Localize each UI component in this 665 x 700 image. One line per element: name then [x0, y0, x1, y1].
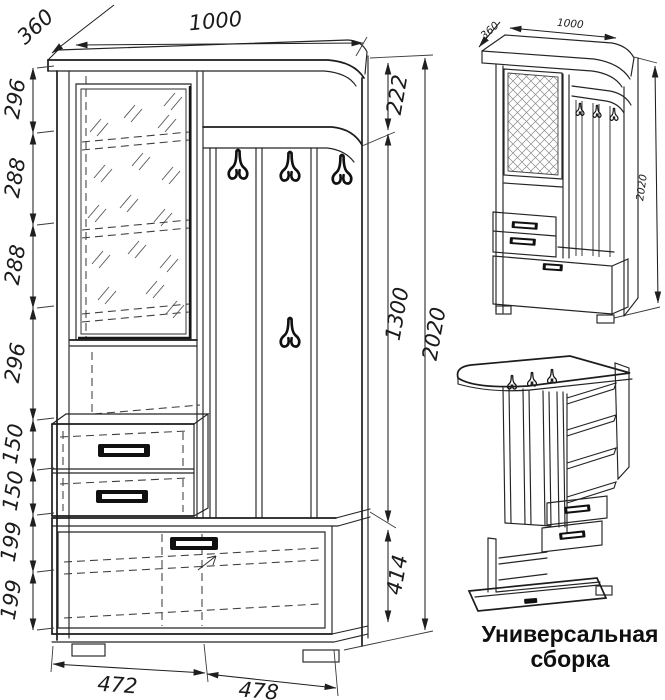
caption-line-2: сборка — [530, 646, 609, 672]
drawer-handle — [559, 530, 586, 540]
drawer-handle — [96, 490, 148, 503]
furniture-technical-drawing: 1000 360 — [0, 0, 665, 700]
drawer-handle — [98, 444, 150, 457]
foot — [597, 315, 614, 323]
coat-hook-icon — [576, 103, 584, 115]
dim-label-360: 360 — [12, 4, 58, 49]
caption-line-1: Универсальная — [482, 621, 659, 647]
dim-bottom: 472 478 — [51, 644, 338, 700]
coat-hook-icon — [281, 318, 300, 347]
dim-label-472: 472 — [97, 672, 139, 699]
dim-chain-left: 296 288 288 296 150 150 199 199 — [0, 66, 54, 630]
dim-label-199: 199 — [0, 520, 26, 564]
front-view: 1000 360 — [0, 4, 451, 700]
coat-hook-icon — [610, 108, 618, 120]
mirror-bottom-shelf — [70, 340, 200, 416]
coat-hook-icon — [548, 369, 557, 383]
dim-label-222: 222 — [382, 73, 413, 117]
door-handle — [170, 537, 218, 550]
dim-label-296: 296 — [0, 341, 30, 385]
coat-hook-icon — [528, 372, 537, 386]
dim-label-478: 478 — [238, 677, 280, 700]
flap-handle — [524, 598, 537, 604]
iso-view-front: 360 1000 2020 — [479, 17, 660, 323]
hook-panel-slats — [210, 148, 317, 518]
iso1-body — [493, 58, 638, 323]
top-canopy — [48, 40, 367, 86]
iso2-slat-panel — [503, 388, 565, 527]
iso-dim-label-1000: 1000 — [556, 17, 584, 31]
coat-hook-icon — [333, 155, 352, 184]
dim-label-2020: 2020 — [418, 305, 451, 362]
dim-width-top: 1000 — [76, 7, 367, 56]
iso-dim-label-2020: 2020 — [634, 173, 650, 201]
dim-label-150: 150 — [0, 422, 28, 466]
bottom-cabinet — [52, 509, 370, 662]
drawing-canvas: 1000 360 — [0, 0, 665, 700]
center-divider — [197, 72, 203, 518]
dim-label-150: 150 — [0, 469, 28, 513]
dim-label-296: 296 — [0, 77, 30, 121]
dim-chain-right: 222 1300 414 2020 — [344, 55, 451, 650]
iso2-drawers — [542, 496, 607, 552]
iso1-mirror — [508, 73, 558, 175]
dim-label-288: 288 — [0, 243, 30, 287]
coat-hook-icon — [229, 150, 248, 179]
dim-label-288: 288 — [0, 156, 30, 200]
dim-label-414: 414 — [382, 553, 413, 597]
hidden-shelves — [82, 132, 189, 322]
drawer-handle — [564, 504, 591, 514]
coat-hook-icon — [593, 105, 601, 117]
iso-dim-label-360: 360 — [479, 19, 502, 42]
dim-label-1300: 1300 — [381, 285, 414, 342]
dim-label-1000: 1000 — [188, 7, 243, 36]
drawer-unit — [52, 414, 208, 516]
left-side-panel — [57, 71, 86, 640]
door-handle — [543, 263, 563, 271]
coat-hook-icon — [281, 152, 300, 181]
mirror-hatching — [88, 93, 184, 318]
foot — [72, 644, 105, 656]
dim-label-199: 199 — [0, 578, 26, 622]
iso-view-back — [458, 356, 632, 611]
mirror — [76, 84, 191, 340]
foot — [303, 650, 339, 662]
dim-depth: 360 — [12, 4, 114, 53]
hook-shelf — [203, 127, 362, 162]
